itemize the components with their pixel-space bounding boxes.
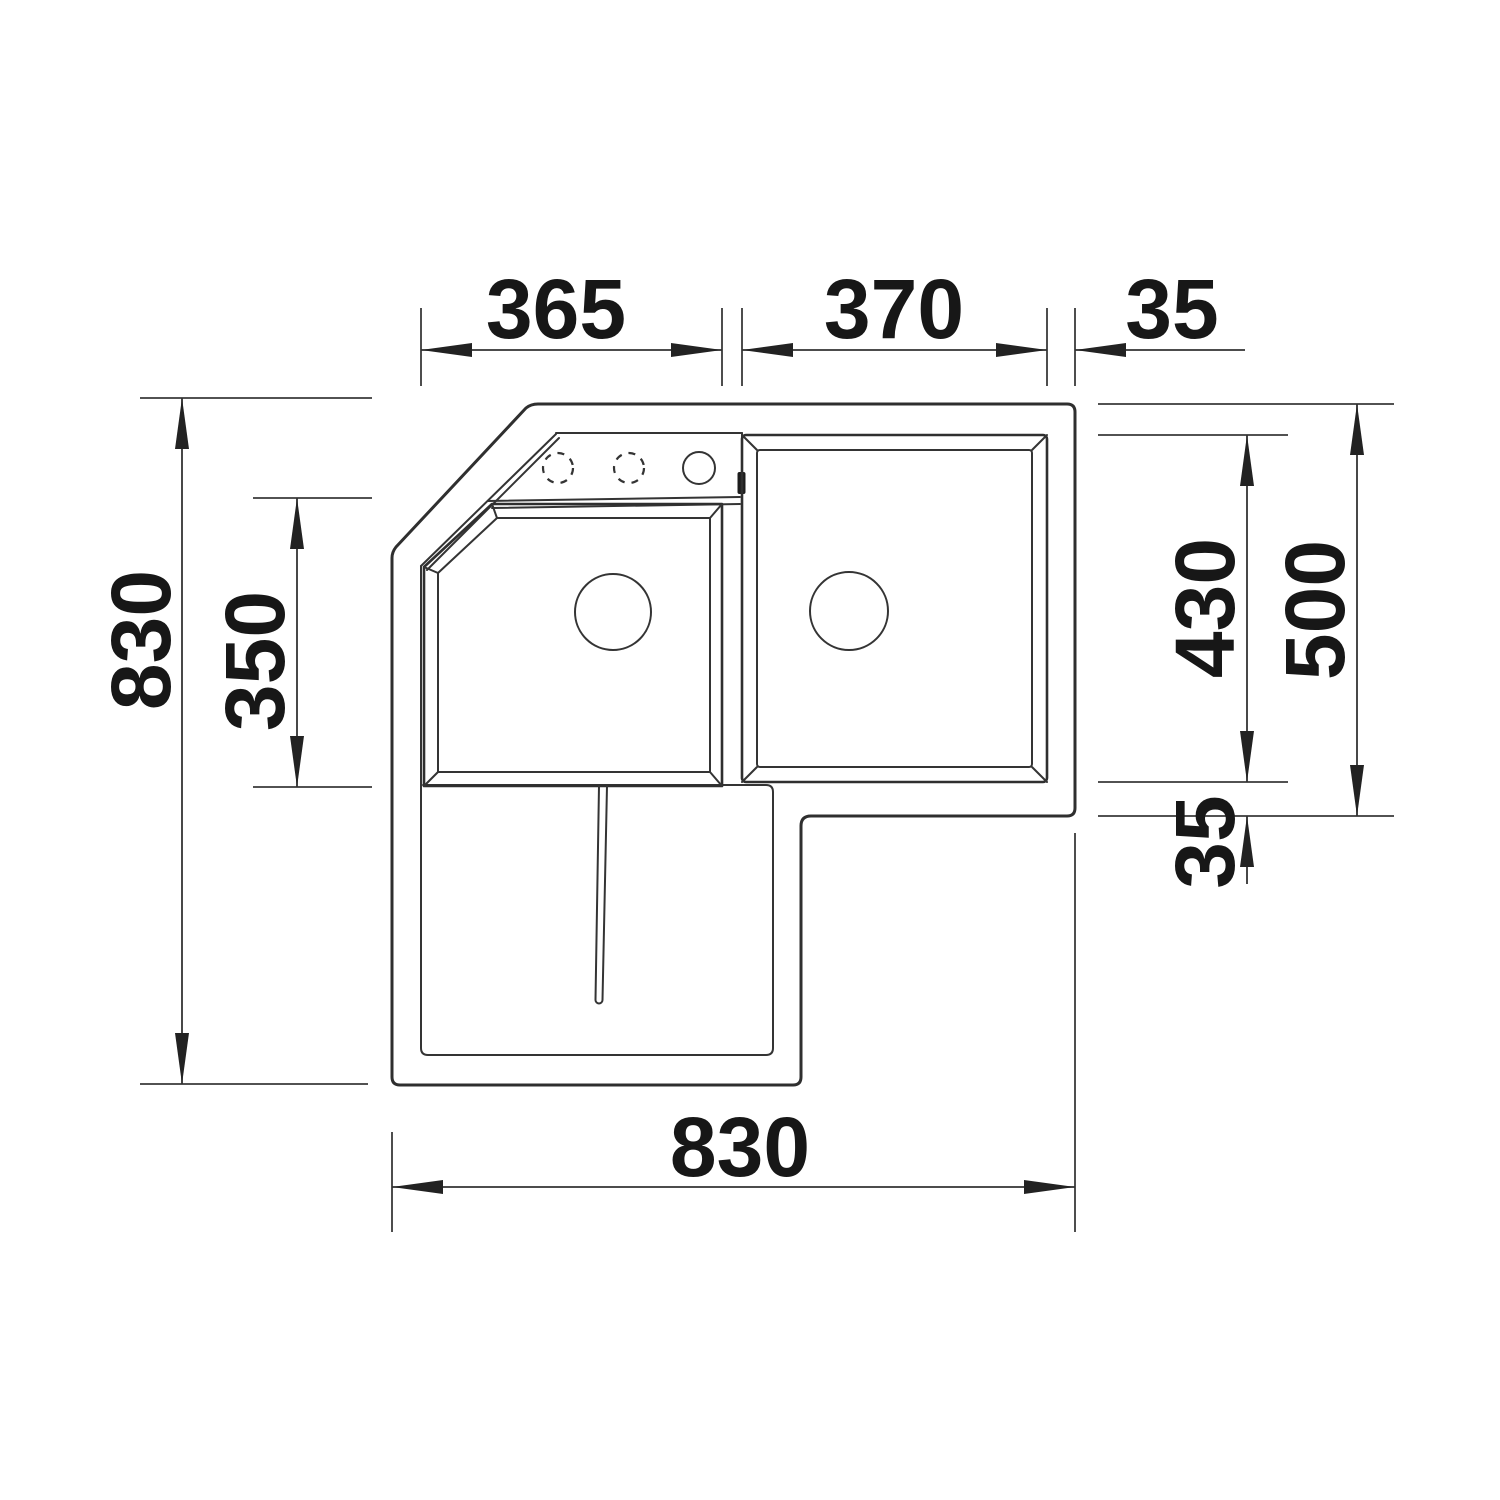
dim-label-top-left-width: 365 [486, 262, 626, 356]
sink-body [392, 404, 1075, 1085]
dim-top-group: 365 370 35 [421, 262, 1245, 386]
right-bowl-bevel-botleft [742, 767, 757, 782]
dim-label-bottom-overall-width: 830 [670, 1100, 810, 1194]
dim-label-left-bowl-depth: 350 [208, 591, 302, 731]
right-bowl-bevel-botright [1032, 767, 1047, 782]
tap-hole-solid-icon [683, 452, 715, 484]
arrow-left-icon [421, 343, 472, 357]
tap-hole-dashed-left-icon [543, 453, 573, 483]
dim-label-right-bowl-depth: 430 [1158, 538, 1252, 678]
dim-label-top-bowl-width: 370 [824, 262, 964, 356]
sink-outer-outline [392, 404, 1075, 1085]
corner-bowl-outer-edge [424, 504, 722, 786]
corner-bowl-inner-edge [438, 518, 710, 772]
corner-bowl-drain [575, 574, 651, 650]
arrow-left-icon [1075, 343, 1126, 357]
arrow-right-icon [671, 343, 722, 357]
arrow-up-icon [290, 498, 304, 549]
corner-sink-dimension-drawing: 365 370 35 830 350 [0, 0, 1500, 1500]
arrow-up-icon [1240, 435, 1254, 486]
arrow-up-icon [1350, 404, 1364, 455]
arrow-down-icon [175, 1033, 189, 1084]
drawing-canvas: 365 370 35 830 350 [0, 0, 1500, 1500]
corner-bowl-bevel-topright [710, 504, 722, 518]
right-bowl-bevel-topright [1032, 435, 1047, 450]
arrow-right-icon [996, 343, 1047, 357]
arrow-down-icon [1350, 765, 1364, 816]
dim-bottom-group: 830 [392, 833, 1075, 1232]
arrow-down-icon [1240, 731, 1254, 782]
drainer-groove [596, 786, 608, 1004]
corner-bowl-bevel-botleft [424, 772, 438, 786]
dim-label-right-section-depth: 500 [1268, 540, 1362, 680]
dim-label-top-right-rim: 35 [1125, 262, 1218, 356]
right-bowl-bevel-topleft [742, 435, 757, 450]
arrow-left-icon [392, 1180, 443, 1194]
arrow-down-icon [290, 736, 304, 787]
arrow-up-icon [175, 398, 189, 449]
arrow-left-icon [742, 343, 793, 357]
tap-ledge-bottom-edge-upper [488, 497, 740, 501]
dim-left-group: 830 350 [94, 398, 372, 1084]
right-bowl-inner-edge [757, 450, 1032, 767]
dim-right-group: 430 500 35 [1098, 404, 1394, 889]
corner-bowl-bevel-botright [710, 772, 722, 786]
corner-bowl-bevel-topleft [492, 504, 497, 518]
tap-hole-dashed-right-icon [614, 453, 644, 483]
arrow-right-icon [1024, 1180, 1075, 1194]
dim-label-left-overall-depth: 830 [94, 570, 188, 710]
dim-label-right-bottom-rim: 35 [1158, 795, 1252, 888]
rim-inner-and-drainer-border [421, 566, 773, 1055]
right-bowl-drain [810, 572, 888, 650]
right-bowl-outer-edge [742, 435, 1047, 782]
